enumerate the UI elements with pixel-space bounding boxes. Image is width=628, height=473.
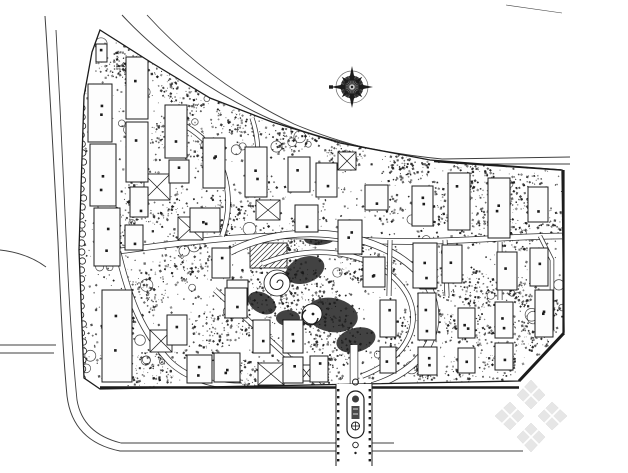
building-footprint [497, 252, 517, 290]
building-footprint [187, 355, 212, 383]
entrance-mark [463, 324, 466, 327]
entrance-mark [224, 372, 227, 375]
tree-icon [79, 366, 85, 372]
building-footprint [495, 302, 513, 338]
building-footprint [102, 290, 132, 382]
building-footprint [88, 84, 112, 142]
entrance-mark [428, 364, 431, 367]
entrance-mark [176, 326, 179, 329]
entrance-mark [425, 277, 428, 280]
entrance-mark [105, 249, 108, 252]
entrance-mark [135, 139, 138, 142]
watermark-petal [538, 402, 567, 430]
building-footprint [212, 248, 230, 278]
building-footprint [413, 243, 437, 288]
building-footprint [363, 257, 385, 287]
building-footprint [458, 308, 475, 338]
building-footprint [203, 138, 225, 188]
entrance-mark [292, 333, 295, 336]
building-footprint [283, 320, 303, 353]
tree-icon [80, 321, 86, 327]
tree-icon [78, 330, 84, 336]
entrance-mark [504, 359, 507, 362]
entrance-mark [197, 374, 200, 377]
entrance-mark [426, 330, 429, 333]
building-footprint [214, 353, 240, 382]
entrance-mark [465, 361, 468, 364]
building-footprint [528, 187, 548, 222]
entrance-mark [450, 261, 453, 264]
building-footprint [165, 105, 187, 158]
building-footprint [530, 248, 548, 286]
watermark-logo-icon [495, 380, 567, 452]
building-footprint [190, 208, 220, 232]
entrance-mark [226, 369, 229, 372]
building-footprint [253, 320, 270, 353]
building-footprint [380, 300, 396, 337]
hatched-structure [258, 363, 284, 385]
entrance-mark [175, 140, 178, 143]
entrance-mark [501, 317, 504, 320]
entrance-mark [100, 189, 103, 192]
building-footprint [442, 245, 462, 283]
watermark-petal [517, 380, 545, 409]
building-footprint [535, 290, 553, 337]
entrance-mark [422, 203, 425, 206]
tree-icon [79, 177, 85, 183]
entrance-mark [537, 210, 540, 213]
entrance-mark [496, 210, 499, 213]
building-footprint [94, 208, 120, 266]
entrance-mark [292, 340, 295, 343]
compass-west-tick [329, 85, 333, 88]
entrance-mark [102, 175, 105, 178]
building-footprint [283, 357, 303, 383]
building-footprint [495, 343, 513, 370]
entrance-mark [376, 202, 379, 205]
building-footprint [295, 205, 318, 232]
watermark-petal [517, 423, 545, 452]
entrance-mark [539, 263, 542, 266]
spiral-plaza [264, 270, 290, 296]
entrance-mark [115, 315, 118, 318]
entrance-mark [236, 306, 239, 309]
entrance-mark [425, 309, 428, 312]
entrance-mark [178, 166, 181, 169]
entrance-mark [467, 327, 470, 330]
entrance-mark [327, 185, 330, 188]
building-footprint [169, 160, 189, 183]
building-footprint [288, 157, 310, 192]
entrance-mark [293, 365, 296, 368]
entrance-mark [221, 257, 224, 260]
building-footprint [225, 288, 247, 318]
entrance-mark [134, 243, 137, 246]
tree-icon [79, 114, 85, 120]
site-plan-drawing [0, 0, 628, 473]
entrance-mark [254, 169, 257, 172]
entrance-mark [388, 309, 391, 312]
site-plan-svg [0, 0, 628, 473]
building-footprint [458, 348, 475, 373]
building-footprint [126, 122, 148, 182]
building-footprint [96, 44, 107, 62]
building-footprint [90, 144, 116, 206]
entrance-mark [386, 360, 389, 363]
site-area [77, 30, 570, 400]
building-footprint [125, 225, 143, 250]
building-footprint [167, 315, 187, 345]
entrance-mark [213, 157, 216, 160]
watermark-petal [495, 402, 524, 430]
pond-feature [302, 304, 322, 325]
building-footprint [338, 220, 362, 254]
hatched-structure [256, 200, 280, 220]
entrance-mark [372, 275, 375, 278]
entrance-mark [319, 362, 322, 365]
tree-icon [77, 312, 83, 318]
entrance-mark [107, 228, 110, 231]
building-footprint [365, 185, 388, 210]
entrance-mark [296, 169, 299, 172]
building-footprint [380, 347, 396, 373]
building-footprint [412, 186, 433, 226]
building-footprint [488, 178, 510, 238]
entrance-mark [101, 105, 104, 108]
entrance-mark [350, 231, 353, 234]
entrance-mark [423, 262, 426, 265]
compass-rose-icon [329, 66, 373, 108]
tree-icon [78, 276, 84, 282]
entrance-mark [503, 327, 506, 330]
building-footprint [130, 187, 148, 217]
entrance-mark [422, 197, 425, 200]
entrance-mark [306, 225, 309, 228]
entrance-mark [504, 267, 507, 270]
entrance-mark [198, 366, 201, 369]
entrance-mark [256, 178, 259, 181]
building-footprint [310, 356, 328, 382]
entrance-mark [100, 113, 103, 116]
entrance-mark [140, 210, 143, 213]
entrance-mark [134, 80, 137, 83]
entrance-mark [456, 185, 459, 188]
entrance-mark [543, 311, 546, 314]
road-line [0, 250, 46, 267]
entrance-mark [205, 223, 208, 226]
entrance-mark [497, 204, 500, 207]
building-footprint [448, 173, 470, 230]
entrance-mark [114, 349, 117, 352]
building-footprint [245, 147, 267, 197]
path-surface [389, 240, 390, 296]
hatched-structure [338, 152, 356, 170]
entrance-mark [100, 49, 103, 52]
entrance-mark [202, 221, 205, 224]
entrance-mark [347, 236, 350, 239]
building-footprint [418, 347, 437, 375]
building-footprint [418, 293, 436, 340]
entrance-gate [336, 379, 372, 466]
building-footprint [316, 163, 337, 197]
entrance-mark [428, 357, 431, 360]
road-line [506, 5, 562, 13]
entrance-mark [262, 340, 265, 343]
building-footprint [126, 57, 148, 119]
